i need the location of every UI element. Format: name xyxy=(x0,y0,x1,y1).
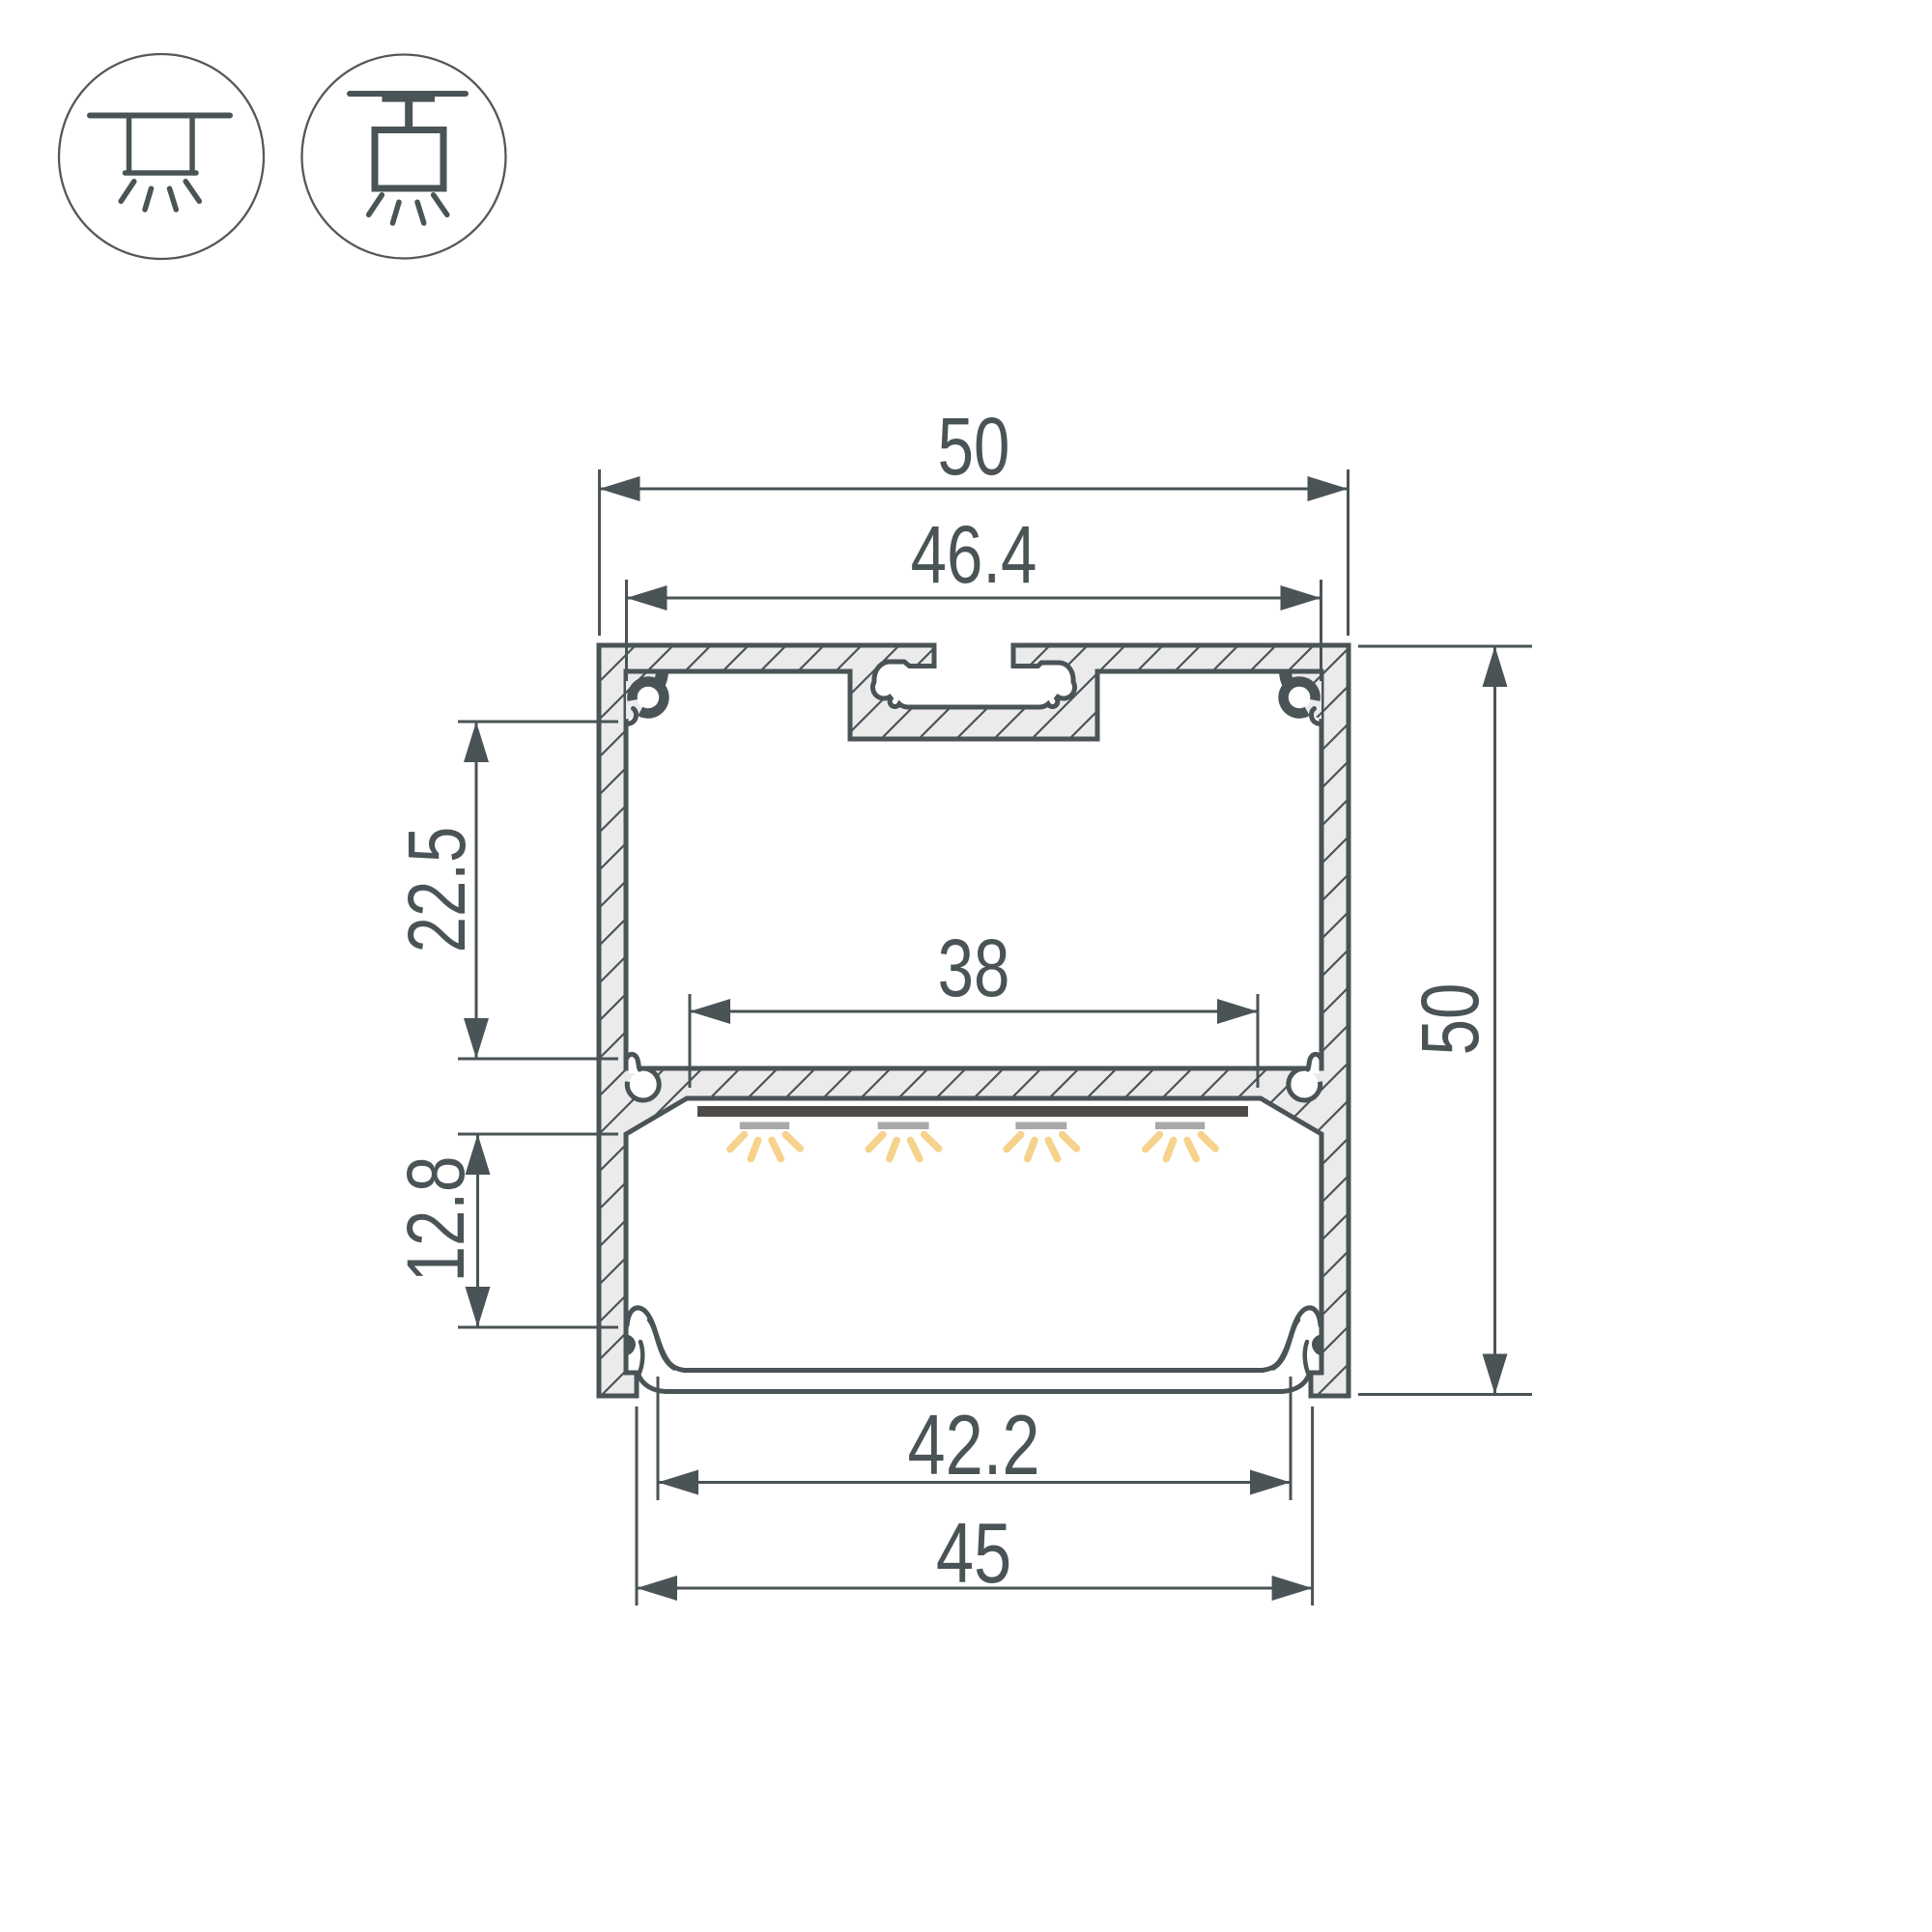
svg-text:45: 45 xyxy=(936,1505,1011,1600)
svg-text:38: 38 xyxy=(938,923,1010,1014)
svg-text:50: 50 xyxy=(938,402,1010,493)
svg-text:46.4: 46.4 xyxy=(911,510,1037,601)
svg-text:12.8: 12.8 xyxy=(391,1156,482,1283)
svg-text:42.2: 42.2 xyxy=(907,1397,1039,1492)
svg-text:22.5: 22.5 xyxy=(392,827,483,953)
svg-text:50: 50 xyxy=(1406,983,1496,1056)
